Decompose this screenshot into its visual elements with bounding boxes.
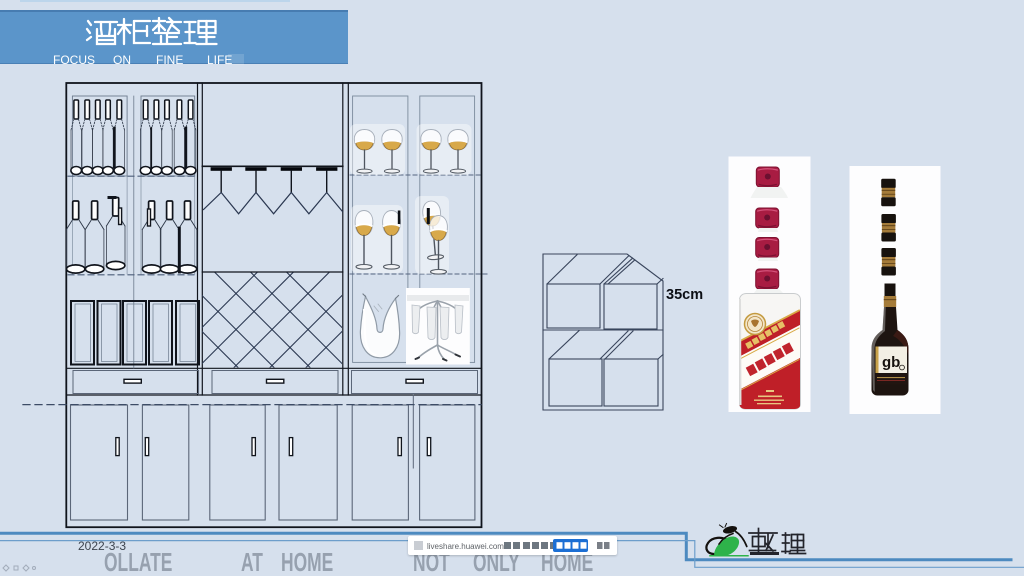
svg-text:gb: gb [882, 354, 900, 371]
svg-text:35cm: 35cm [666, 287, 703, 303]
svg-text:liveshare.huawei.com: liveshare.huawei.com [427, 542, 504, 550]
